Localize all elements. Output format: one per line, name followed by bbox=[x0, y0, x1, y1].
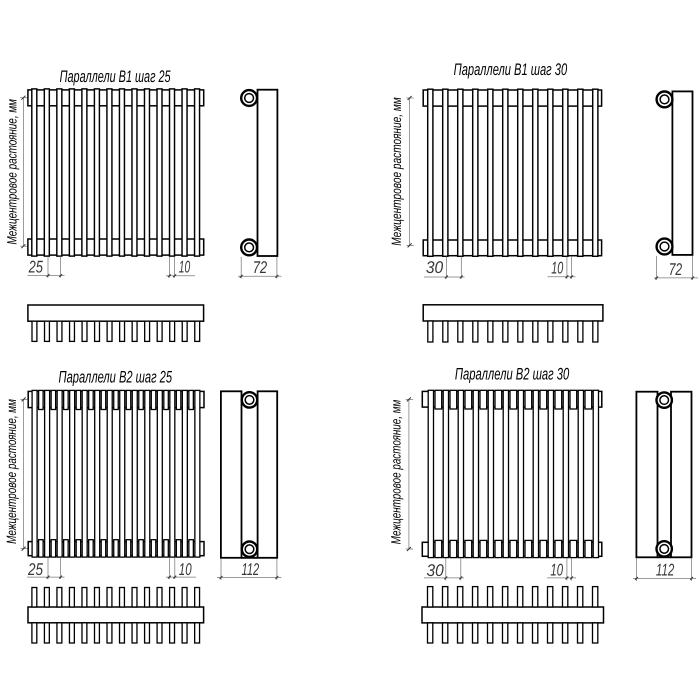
svg-text:10: 10 bbox=[551, 259, 563, 278]
svg-text:Параллели В2 шаг 30: Параллели В2 шаг 30 bbox=[455, 364, 570, 383]
svg-text:30: 30 bbox=[427, 561, 445, 580]
svg-text:30: 30 bbox=[426, 258, 444, 277]
svg-text:Параллели В1 шаг 30: Параллели В1 шаг 30 bbox=[454, 60, 568, 79]
svg-text:25: 25 bbox=[28, 257, 43, 276]
svg-text:Параллели В1 шаг 25: Параллели В1 шаг 25 bbox=[60, 67, 171, 86]
svg-text:112: 112 bbox=[656, 560, 675, 579]
svg-text:72: 72 bbox=[669, 260, 683, 279]
svg-text:10: 10 bbox=[179, 560, 192, 579]
svg-text:10: 10 bbox=[179, 258, 191, 277]
svg-text:72: 72 bbox=[253, 258, 268, 277]
svg-text:Межцентровое растояние, мм: Межцентровое растояние, мм bbox=[4, 399, 19, 544]
svg-text:Межцентровое растояние, мм: Межцентровое растояние, мм bbox=[389, 97, 404, 246]
svg-text:Параллели В2 шаг 25: Параллели В2 шаг 25 bbox=[59, 367, 173, 386]
svg-text:Межцентровое растояние, мм: Межцентровое растояние, мм bbox=[5, 99, 20, 245]
svg-text:Межцентровое растояние, мм: Межцентровое растояние, мм bbox=[389, 399, 404, 544]
svg-text:112: 112 bbox=[242, 560, 260, 579]
svg-text:10: 10 bbox=[550, 560, 563, 579]
svg-text:25: 25 bbox=[27, 560, 43, 579]
